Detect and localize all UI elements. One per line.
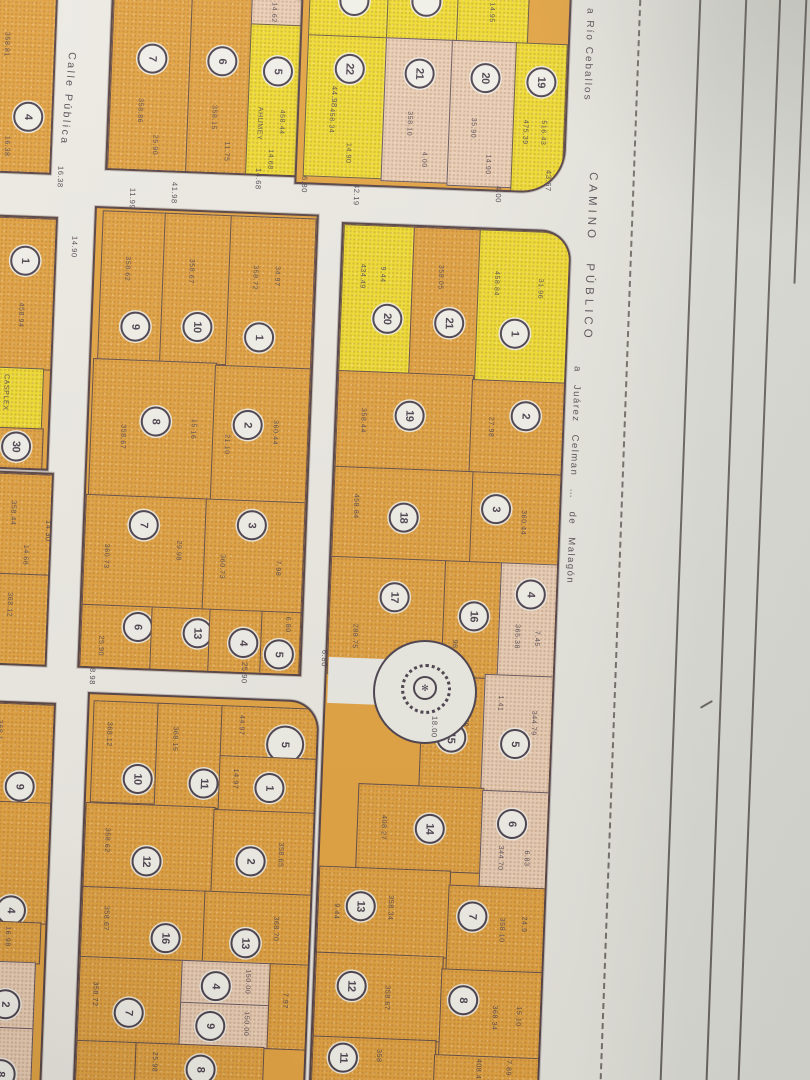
lot-number: 5 [272, 68, 284, 74]
lot-dimension-label: 16.38 [3, 136, 11, 157]
lot-number: 4 [525, 591, 537, 597]
lot-number: 16 [159, 932, 171, 944]
lot-dimension-label: 360.73 [218, 554, 226, 579]
land-lot: 7.97 [266, 963, 309, 1050]
lot-dimension-label: 360.44 [271, 420, 279, 445]
lot-dimension-label: 360.73 [102, 544, 110, 569]
lot-number: 4 [5, 907, 17, 913]
lot-dimension-label: 11.75 [223, 141, 231, 161]
lot-number: 13 [191, 627, 203, 639]
land-lot: 30 [0, 426, 44, 471]
lot-dimension-label: 358.44 [9, 500, 17, 525]
lot-dimension-label: 150.00 [242, 1011, 250, 1036]
lot-number-badge: 1 [499, 318, 530, 349]
city-block: 358.4414.68368.12 [0, 470, 54, 667]
lot-dimension-label: 24.9 [520, 916, 528, 932]
lot-number-badge: 11 [188, 768, 219, 799]
land-lot: 9150.00 [178, 1002, 270, 1049]
lot-number-badge: 19 [526, 67, 557, 98]
lot-dimension-label: 368.1 [0, 720, 3, 741]
lot-number: 6 [216, 58, 228, 64]
lot-number-badge: 3 [481, 494, 512, 525]
lot-number-badge: 1 [244, 322, 275, 353]
lot-dimension-label: 358.67 [187, 259, 195, 284]
street-dimension-label: 6.80 [320, 650, 330, 667]
street-dimension-label: 14.30 [44, 520, 54, 542]
lot-number-badge: 7 [128, 510, 159, 541]
lot-number-badge: 16 [150, 923, 181, 954]
lot-number-badge [339, 0, 370, 17]
lot-number: 7 [138, 522, 150, 528]
lot-number-badge: 30 [1, 431, 32, 462]
lot-dimension-label: 360.44 [519, 510, 527, 535]
lot-dimension-label: 516.43 [539, 120, 547, 145]
lot-dimension-label: 408.4 [474, 1059, 482, 1080]
lot-number: 2 [520, 413, 532, 419]
lot-dimension-label: 458.94 [17, 302, 25, 327]
lot-dimension-label: 14.95 [488, 2, 496, 23]
lot-dimension-label: 14.62 [270, 2, 278, 23]
lot-dimension-label: 25.98 [150, 1052, 158, 1073]
lot-dimension-label: 358.10 [497, 918, 505, 943]
lot-number-badge: 9 [120, 311, 151, 342]
street-dimension-label: 42.19 [352, 184, 362, 206]
land-lot: 13 [149, 606, 211, 672]
land-lot: 12358.62 [82, 802, 215, 893]
lot-number: 17 [388, 591, 400, 603]
lot-number-badge: 7 [113, 997, 144, 1028]
lot-dimension-label: 14.68 [266, 149, 274, 170]
lot-number: 30 [10, 441, 22, 453]
lot-number: 21 [413, 68, 425, 80]
land-lot: 8368.3415.10 [438, 968, 543, 1060]
lot-dimension-label: 358.65 [276, 842, 284, 867]
lot-dimension-label: 358.81 [3, 32, 11, 57]
land-lot: 56.80 [259, 611, 301, 676]
lot-dimension-label: 358.67 [102, 906, 110, 931]
lot-number-badge: 21 [434, 308, 465, 339]
lot-dimension-label: AHUMEY [255, 107, 263, 141]
land-lot: 2035.9014.90 [446, 40, 518, 188]
lot-dimension-label: 9.44 [379, 266, 387, 282]
lot-number-badge: 10 [182, 311, 213, 342]
land-lot: 3360.44 [469, 471, 563, 568]
lot-number: 13 [355, 900, 367, 912]
land-lot: 11368.15 [154, 703, 224, 809]
map-dashed-border-line [599, 0, 642, 1080]
lot-dimension-label: 358 [375, 1049, 383, 1063]
lot-number: 8 [194, 1067, 206, 1073]
city-block: 4358.8116.38 [0, 0, 58, 175]
lot-dimension-label: 358.44 [359, 408, 367, 433]
lot-dimension-label: 4.00 [420, 152, 428, 168]
land-lot: 4358.4 [0, 800, 52, 925]
lot-number: 6 [506, 821, 518, 827]
city-block: 9358.6210358.671358.7234.978358.6715.162… [77, 206, 319, 676]
lot-number: 2 [0, 1001, 11, 1007]
land-lot: 2 [0, 960, 36, 1030]
land-lot: 19475.39516.43 [510, 42, 568, 194]
lot-number-badge: 5 [500, 728, 531, 759]
land-lot: 6344.706.83 [479, 790, 551, 891]
map-border-line [705, 0, 749, 1080]
land-lot: 114.97 [218, 755, 318, 815]
land-lot: 12358.67 [313, 952, 444, 1043]
lot-dimension-label: 358.72 [251, 265, 259, 290]
land-lot: 7360.7329.98 [82, 494, 208, 611]
land-lot: 1458.8431.96 [474, 229, 572, 384]
lot-dimension-label: 1.41 [496, 695, 504, 711]
lot-dimension-label: 15.16 [189, 419, 197, 440]
street-dimension-label: 16.38 [56, 166, 66, 188]
lot-dimension-label: 14.90 [344, 143, 352, 164]
lot-number-badge: 13 [230, 928, 261, 959]
land-lot: 368.12 [0, 572, 50, 667]
land-lot: 408.47.89 [433, 1054, 540, 1080]
street-dimension-label: 11.99 [128, 188, 138, 210]
lot-dimension-label: 27.98 [487, 417, 495, 438]
lot-number: 1 [253, 334, 265, 340]
lot-number: 20 [381, 313, 393, 325]
street-dimension-label: 25.90 [240, 662, 250, 684]
land-lot: 11358 [311, 1035, 437, 1080]
land-lot: 4358.8116.38 [0, 0, 58, 175]
land-lot: 20434.499.44 [338, 224, 416, 375]
lot-number-badge: 8 [448, 985, 479, 1016]
land-lot: 4365.387.45 [497, 562, 559, 678]
land-lot: 8 [0, 1026, 33, 1080]
land-lot: 16358.67 [80, 886, 207, 963]
lot-dimension-label: 358.67 [383, 985, 391, 1010]
lot-dimension-label: 408.27 [379, 815, 387, 840]
land-lot [75, 1040, 137, 1080]
street-dimension-label: 43.67 [544, 170, 554, 192]
land-lot: 21358.05 [408, 227, 482, 379]
land-lot: 13358.349.44 [316, 866, 451, 959]
lot-dimension-label: 16.98 [4, 926, 12, 947]
lot-dimension-label: 25.90 [97, 635, 105, 656]
lot-number-badge: 8 [140, 406, 171, 437]
street-dimension-label: 44.98 [330, 86, 340, 108]
lot-number: 20 [479, 72, 491, 84]
land-lot: 9368.1 [0, 702, 56, 805]
land-lot: 1458.94 [0, 216, 58, 371]
land-lot: 16.98 [0, 920, 42, 965]
lot-number: 7 [146, 56, 158, 62]
land-lot: 21358.104.00 [380, 37, 453, 184]
lot-number-badge: 18 [388, 502, 419, 533]
lot-number-badge [411, 0, 442, 17]
lot-number-badge: 12 [131, 846, 162, 877]
lot-dimension-label: 6.83 [522, 850, 530, 866]
lot-dimension-label: 358.15 [210, 105, 218, 130]
lot-number: 10 [131, 773, 143, 785]
lot-dimension-label: 31.96 [536, 279, 544, 300]
lot-dimension-label: 458.84 [352, 494, 360, 519]
map-border-line [659, 0, 703, 1080]
lot-dimension-label: 7.98 [274, 560, 282, 576]
map-border-line [737, 0, 783, 1080]
lot-dimension-label: 44.97 [237, 715, 245, 736]
street-dimension-label: 14.68 [254, 168, 264, 190]
land-lot: 14408.27 [355, 783, 484, 874]
map-border-line [793, 0, 808, 284]
lot-number-badge: 4 [200, 971, 231, 1002]
lot-number-badge: 2 [0, 989, 21, 1020]
street-dimension-label: 41.98 [170, 182, 180, 204]
lot-dimension-label: 288.75 [351, 624, 359, 649]
lot-number: 4 [237, 640, 249, 646]
land-lot: 2358.65 [210, 809, 315, 897]
lot-number-badge: 11 [327, 1042, 358, 1073]
lot-number: 14 [424, 823, 436, 835]
lot-dimension-label: 7.45 [533, 631, 541, 647]
land-lot: 8358.6715.16 [88, 358, 217, 501]
lot-number-badge: 13 [345, 891, 376, 922]
land-lot: 544.97 [220, 705, 320, 761]
lot-dimension-label: 344.79 [529, 711, 537, 736]
lot-number-badge: 1 [10, 245, 41, 276]
lot-number-badge: 12 [336, 970, 367, 1001]
land-lot: 18458.84 [331, 466, 474, 563]
lot-number: 8 [0, 1071, 7, 1077]
lot-number-badge: 3 [236, 510, 267, 541]
lot-number: 11 [197, 778, 209, 789]
lot-dimension-label: 21.10 [223, 434, 231, 455]
lot-dimension-label: 15.10 [514, 1006, 522, 1027]
land-lot: 625.90 [79, 604, 153, 671]
lot-dimension-label: 9.44 [332, 903, 340, 919]
lot-number-badge: 8 [0, 1059, 16, 1080]
lot-number: 18 [397, 512, 409, 524]
land-lot: 14.95 [456, 0, 530, 45]
street-dimension-label: 6.80 [300, 176, 310, 193]
lot-number: 5 [273, 651, 285, 657]
lot-number: 5 [279, 742, 291, 748]
lot-number-badge: 4 [515, 579, 546, 610]
street-dimension-label: 18.00 [430, 716, 440, 738]
street-dimension-label: 14.90 [70, 236, 80, 258]
lot-number-badge: 5 [263, 639, 294, 670]
lot-number: 1 [509, 331, 521, 337]
lot-number: 7 [123, 1010, 135, 1016]
lot-dimension-label: 368.34 [490, 1005, 498, 1030]
lot-dimension-label: 368.12 [5, 592, 13, 617]
land-lot: 227.98 [468, 379, 566, 477]
land-lot: 10358.67 [159, 213, 233, 365]
lot-dimension-label: 368.70 [272, 916, 280, 941]
street-dimension-label: 4.00 [494, 186, 504, 203]
lot-dimension-label: 344.70 [496, 845, 504, 870]
land-lot: 22458.3414.90 [303, 34, 388, 179]
lot-number-badge: 4 [228, 627, 259, 658]
lot-number-badge: 7 [457, 901, 488, 932]
street-dimension-label: 8.98 [88, 668, 98, 685]
lot-number-badge: 1 [254, 772, 285, 803]
lot-number: 2 [245, 858, 257, 864]
lot-dimension-label: 358.34 [386, 895, 394, 920]
lot-number: 11 [337, 1052, 349, 1063]
lot-number: 9 [129, 324, 141, 330]
lot-number-badge: 10 [122, 763, 153, 794]
lot-number-badge: 6 [207, 46, 238, 77]
lot-number-badge: 19 [394, 400, 425, 431]
lot-number-badge: 9 [4, 771, 35, 802]
lot-number: 9 [14, 784, 26, 790]
lot-number: 8 [150, 418, 162, 424]
land-lot: 6358.1511.75 [185, 0, 254, 175]
lot-dimension-label: 7.97 [281, 993, 289, 1009]
land-lot [386, 0, 460, 42]
lot-number-badge: 21 [404, 58, 435, 89]
lot-dimension-label: 458.44 [278, 109, 286, 134]
lot-number-badge: 5 [262, 56, 293, 87]
lot-number: 22 [344, 63, 356, 75]
land-lot: 19358.44 [335, 370, 475, 473]
lot-number-badge: 16 [458, 601, 489, 632]
land-lot: 10368.12 [90, 700, 160, 804]
land-lot: 825.98 [133, 1042, 265, 1080]
lot-number-badge: 4 [13, 101, 44, 132]
lot-number: 3 [246, 522, 258, 528]
lot-dimension-label: 368.12 [105, 722, 113, 747]
lot-dimension-label: 358.62 [123, 256, 131, 281]
land-lot: CASPLEX [0, 366, 44, 430]
land-lot: 7358.8625.90 [107, 0, 194, 173]
lot-number: 12 [345, 980, 357, 992]
lot-number: 3 [490, 506, 502, 512]
lot-dimension-label: 358.67 [119, 424, 127, 449]
lot-number: 10 [191, 321, 203, 333]
lot-dimension-label: 365.38 [513, 624, 521, 649]
lot-number: 7 [466, 913, 478, 919]
lot-number: 4 [22, 114, 34, 120]
lot-dimension-label: 358.86 [136, 98, 144, 123]
lot-number-badge: 6 [122, 611, 153, 642]
lot-dimension-label: 34.97 [273, 266, 281, 287]
lot-number: 4 [210, 983, 222, 989]
land-lot: 7358.1024.9 [445, 885, 546, 975]
lot-number: 19 [403, 410, 415, 422]
land-lot: 7358.72 [77, 956, 184, 1046]
lot-number: 1 [263, 785, 275, 791]
lot-number: 21 [443, 317, 455, 329]
land-lot: 4150.00 [180, 960, 272, 1007]
lot-number: 12 [140, 856, 152, 868]
lot-number: 1 [19, 258, 31, 264]
city-block: 1458.94CASPLEX30 [0, 214, 58, 471]
lot-number: 6 [132, 624, 144, 630]
city-block: 10368.1211368.15544.97114.9712358.622358… [73, 692, 320, 1080]
lot-dimension-label: 35.90 [469, 118, 477, 139]
lot-number-badge: 2 [235, 846, 266, 877]
lot-dimension-label: 14.97 [231, 769, 239, 790]
map-border-line [700, 700, 713, 709]
lot-number-badge: 6 [496, 808, 527, 839]
lot-dimension-label: 458.34 [327, 108, 335, 133]
lot-number: 2 [242, 422, 254, 428]
lot-number-badge: 20 [470, 63, 501, 94]
lot-number: 13 [239, 937, 251, 949]
lot-dimension-label: 358.72 [91, 981, 99, 1006]
land-lot [308, 0, 390, 39]
lot-number-badge: 7 [137, 43, 168, 74]
lot-dimension-label: 475.39 [521, 120, 529, 145]
lot-number: 16 [468, 611, 480, 623]
lot-dimension-label: 358.10 [405, 111, 413, 136]
land-lot: 13368.70 [202, 891, 313, 969]
lot-dimension-label: 25.90 [151, 135, 159, 156]
roundabout-ornament-core: ✻ [413, 676, 437, 700]
city-block: 7358.8625.906358.1511.7514.625458.44AHUM… [105, 0, 306, 177]
map-photo: 4358.8116.387358.8625.906358.1511.7514.6… [0, 0, 810, 1080]
lot-dimension-label: 29.98 [174, 540, 182, 561]
lot-number-badge: 8 [185, 1054, 216, 1080]
lot-number: 9 [204, 1023, 216, 1029]
lot-number-badge: 2 [232, 409, 263, 440]
land-lot: 2360.4421.10 [210, 365, 311, 505]
land-lot: 1358.7234.97 [225, 215, 317, 370]
land-lot: 3360.737.98 [201, 498, 305, 616]
lot-number: 5 [509, 741, 521, 747]
lot-dimension-label: 7.89 [504, 1060, 512, 1076]
lot-dimension-label: 358.05 [436, 265, 444, 290]
lot-number: 19 [535, 76, 547, 88]
land-lot: 9358.62 [97, 210, 167, 362]
lot-dimension-label: 434.49 [358, 264, 366, 289]
land-lot: 4 [207, 609, 263, 675]
city-block: 9368.14358.416.9828 [0, 700, 56, 1080]
lot-number-badge: 2 [510, 401, 541, 432]
lot-dimension-label: 14.90 [484, 154, 492, 175]
lot-dimension-label: CASPLEX [1, 374, 9, 411]
lot-number-badge: 22 [334, 53, 365, 84]
lot-number: 8 [457, 997, 469, 1003]
lot-dimension-label: 14.68 [21, 545, 29, 566]
lot-number-badge: 14 [414, 813, 445, 844]
lot-dimension-label: 150.00 [244, 969, 252, 994]
lot-number-badge: 20 [372, 303, 403, 334]
lot-dimension-label: 358.62 [103, 828, 111, 853]
lot-dimension-label: 6.80 [284, 617, 292, 633]
lot-dimension-label: 368.15 [171, 726, 179, 751]
lot-number-badge: 9 [195, 1010, 226, 1041]
map-sheet: 4358.8116.387358.8625.906358.1511.7514.6… [0, 0, 810, 1080]
lot-dimension-label: 458.84 [492, 271, 500, 296]
land-lot: 51.41344.79 [480, 674, 554, 795]
lot-number-badge: 17 [379, 582, 410, 613]
